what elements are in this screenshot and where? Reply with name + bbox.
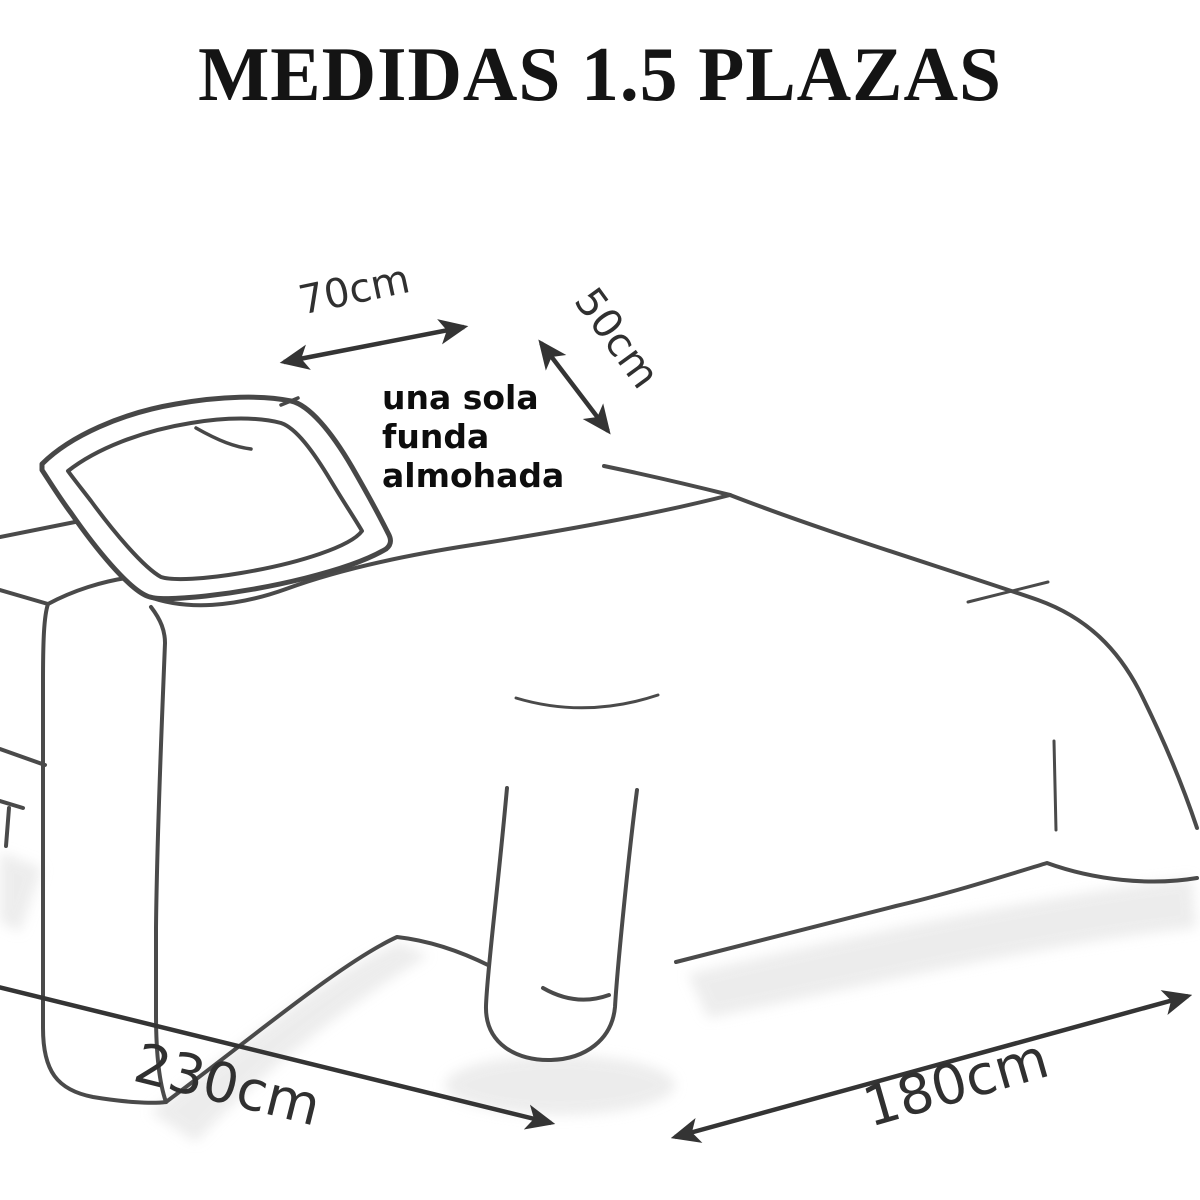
drape-outer-edge	[43, 604, 166, 1103]
bed-right-edge-drape	[730, 495, 1197, 828]
pillow	[42, 397, 390, 598]
pillow-depth-label: 50cm	[565, 280, 668, 398]
pillow-width-arrow	[284, 327, 464, 362]
annotation-line-3: almohada	[382, 456, 564, 495]
base-lower-edge	[0, 749, 45, 765]
corner-fold	[486, 788, 637, 1060]
pillow-width-label: 70cm	[295, 256, 414, 324]
base-bottom-edge	[0, 801, 23, 808]
base-mid-edge	[0, 590, 48, 604]
pillowcase-annotation: una sola funda almohada	[382, 378, 564, 495]
crease-right-vertical	[1054, 741, 1056, 830]
shadow-under-frame	[0, 852, 42, 932]
crease-center	[516, 695, 658, 708]
bed-size-diagram: MEDIDAS 1.5 PLAZAS una sola funda almoha…	[0, 0, 1200, 1200]
base-top-edge	[0, 521, 80, 537]
bed-top-edge-far	[604, 466, 730, 495]
bed-base-lines	[0, 521, 80, 846]
page-title: MEDIDAS 1.5 PLAZAS	[12, 30, 1188, 119]
bed-width-label: 180cm	[856, 1026, 1055, 1140]
bed-illustration: 70cm 50cm 230cm 180cm	[0, 0, 1200, 1200]
pillow-outer-outline	[42, 397, 390, 598]
base-leg-line	[6, 808, 9, 846]
drape-top-edge	[48, 577, 133, 604]
shadow-right	[688, 878, 1196, 1018]
annotation-line-2: funda	[382, 417, 564, 456]
annotation-line-1: una sola	[382, 378, 564, 417]
